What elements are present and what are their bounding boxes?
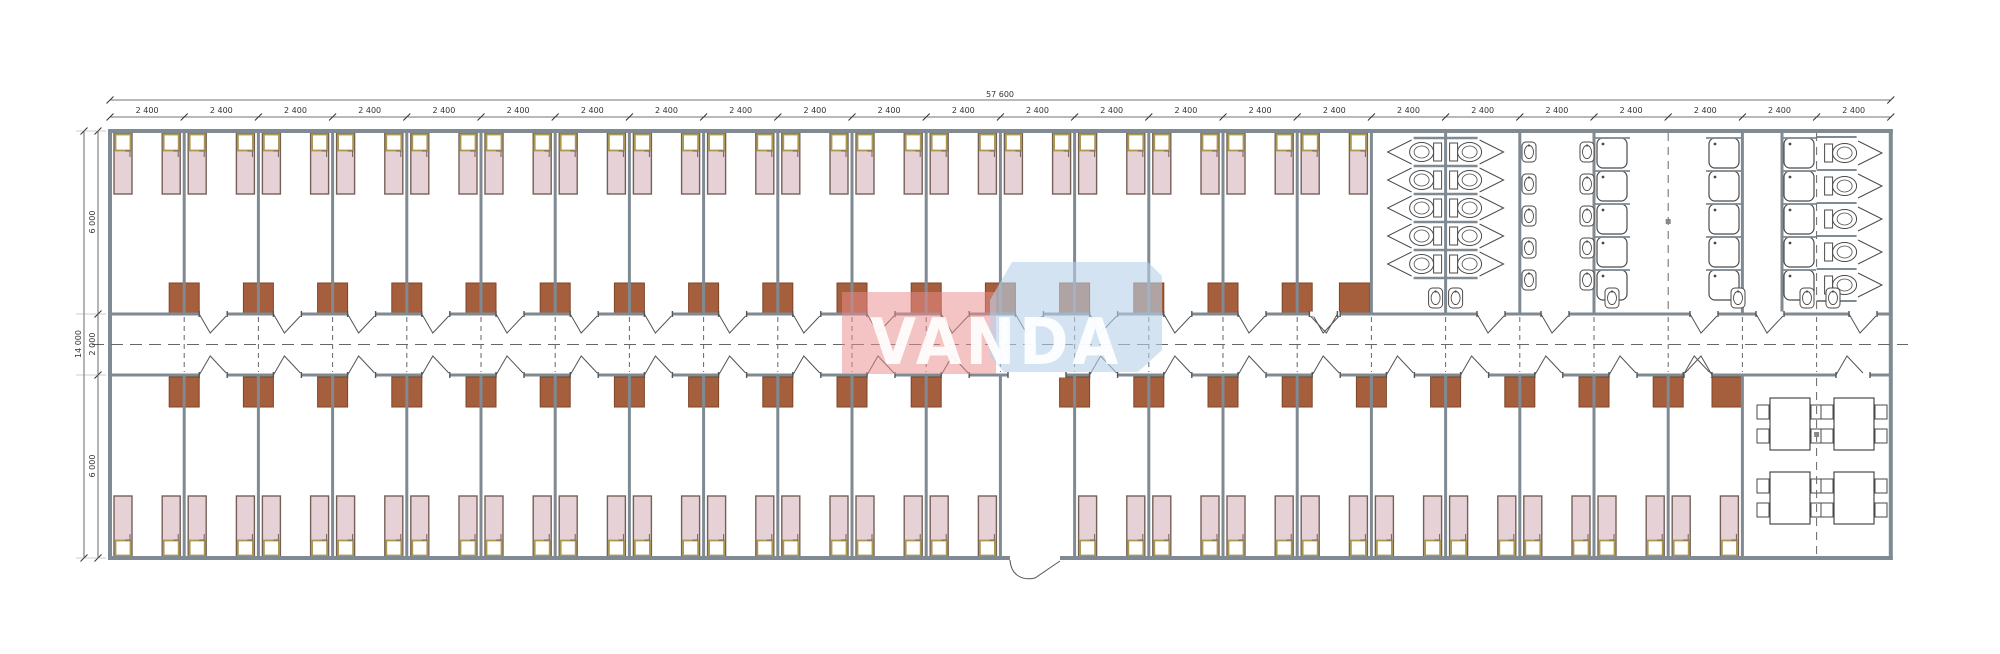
bed-pillow (1054, 135, 1069, 151)
tray-rim (1709, 138, 1739, 168)
door-swing (273, 356, 300, 375)
door-opening (1386, 373, 1414, 378)
bed-icon (1349, 133, 1367, 194)
bed-pillow (312, 541, 327, 556)
shower-tray-icon (1709, 204, 1739, 234)
bed-pillow (609, 541, 624, 556)
tray-rim (1597, 171, 1627, 201)
tray-rim (1784, 138, 1814, 168)
toilet-bowl (1458, 255, 1482, 274)
entrance-door-swing (1010, 560, 1060, 579)
dimension-bay-label: 2 400 (803, 106, 826, 115)
bed-pillow (980, 541, 995, 556)
bed-pillow (1648, 541, 1663, 556)
basin-tap (1586, 144, 1588, 146)
bed-pillow (1006, 135, 1021, 151)
fixtures-layer (1388, 137, 1887, 524)
door-swing (1477, 314, 1504, 333)
door-opening (1238, 312, 1266, 317)
bed-pillow (858, 135, 873, 151)
toilet-icon (1410, 255, 1442, 274)
stall-door (1858, 141, 1882, 165)
bed-icon (607, 496, 625, 557)
door-opening (1609, 373, 1637, 378)
table-with-chairs (1821, 472, 1887, 524)
bed-icon (311, 133, 329, 194)
bed-icon (1301, 496, 1319, 557)
stall-door (1388, 252, 1412, 276)
bed-pillow (709, 135, 724, 151)
toilet-bowl (1410, 171, 1434, 190)
bed-icon (337, 496, 355, 557)
door-opening (1541, 312, 1569, 317)
axis-symbol (1666, 219, 1671, 224)
tray-rim (1597, 138, 1627, 168)
dimension-bottom-depth-label: 6 000 (88, 455, 97, 478)
door-swing (570, 314, 597, 333)
wash-basin-icon (1580, 238, 1594, 258)
dimension-corridor-depth-label: 2 000 (88, 333, 97, 356)
chair (1821, 479, 1833, 493)
door-swing (1386, 356, 1413, 375)
toilet-bowl (1833, 144, 1857, 163)
door-opening (644, 373, 672, 378)
bed-pillow (1277, 135, 1292, 151)
tray-drain (1789, 143, 1792, 146)
bed-icon (633, 496, 651, 557)
toilet-tank (1450, 171, 1458, 189)
wash-basin-icon (1580, 206, 1594, 226)
bed-icon (830, 133, 848, 194)
toilet-icon (1825, 243, 1857, 262)
floor-plan-canvas: 57 600 14 000 6 000 2 000 6 000 2 4002 4… (0, 0, 2000, 654)
shower-tray-icon (1597, 204, 1627, 234)
bed-pillow (683, 135, 698, 151)
bed-pillow (1574, 541, 1589, 556)
bed-icon (1498, 496, 1516, 557)
bed-icon (1349, 496, 1367, 557)
door-swing (570, 356, 597, 375)
bed-icon (385, 133, 403, 194)
bed-pillow (386, 541, 401, 556)
bed-pillow (980, 135, 995, 151)
tray-drain (1789, 209, 1792, 212)
bed-icon (114, 133, 132, 194)
door-opening (570, 373, 598, 378)
chair (1821, 503, 1833, 517)
stall-door (1480, 252, 1504, 276)
room-door (1712, 377, 1742, 407)
bed-pillow (1674, 541, 1689, 556)
bed-icon (782, 133, 800, 194)
bed-icon (188, 133, 206, 194)
shower-tray-icon (1784, 204, 1814, 234)
tray-drain (1602, 209, 1605, 212)
door-opening (1756, 312, 1784, 317)
bed-icon (236, 496, 254, 557)
door-opening (1690, 312, 1718, 317)
stall-door (1858, 240, 1882, 264)
basin-tap (1528, 208, 1530, 210)
dimension-bay-label: 2 400 (507, 106, 530, 115)
bed-icon (1572, 496, 1590, 557)
door-swing (1541, 314, 1568, 333)
bed-icon (930, 496, 948, 557)
dimension-bay-label: 2 400 (1174, 106, 1197, 115)
bed-icon (633, 133, 651, 194)
bed-pillow (1600, 541, 1615, 556)
bed-icon (1646, 496, 1664, 557)
door-opening (199, 373, 227, 378)
bed-pillow (561, 135, 576, 151)
tray-rim (1784, 237, 1814, 267)
basin-tap (1528, 240, 1530, 242)
tray-drain (1789, 176, 1792, 179)
stall-door (1858, 273, 1882, 297)
basin-tap (1586, 176, 1588, 178)
toilet-tank (1450, 143, 1458, 161)
toilet-bowl (1833, 210, 1857, 229)
door-opening (496, 373, 524, 378)
shower-tray-icon (1784, 171, 1814, 201)
door-swing (1310, 314, 1337, 333)
dimension-bay-label: 2 400 (432, 106, 455, 115)
bed-pillow (1722, 541, 1737, 556)
bed-icon (559, 133, 577, 194)
tray-drain (1602, 176, 1605, 179)
tray-drain (1602, 143, 1605, 146)
toilet-bowl (1410, 255, 1434, 274)
toilet-tank (1825, 144, 1833, 162)
tray-drain (1602, 275, 1605, 278)
bed-icon (830, 496, 848, 557)
bed-pillow (1525, 541, 1540, 556)
bed-icon (411, 496, 429, 557)
bed-icon (1153, 133, 1171, 194)
toilet-icon (1410, 227, 1442, 246)
chair (1757, 479, 1769, 493)
bed-pillow (1303, 135, 1318, 151)
door-swing (1535, 356, 1562, 375)
toilet-tank (1434, 227, 1442, 245)
bed-icon (904, 496, 922, 557)
bed-icon (114, 496, 132, 557)
door-opening (1836, 373, 1870, 378)
tray-drain (1789, 242, 1792, 245)
bed-pillow (1203, 541, 1218, 556)
bed-pillow (858, 541, 873, 556)
door-swing (422, 314, 449, 333)
bed-icon (1375, 496, 1393, 557)
dimension-bay-label: 2 400 (1768, 106, 1791, 115)
door-opening (1535, 373, 1563, 378)
bed-icon (162, 133, 180, 194)
dimension-total-width-label: 57 600 (986, 90, 1014, 99)
chair (1757, 429, 1769, 443)
bed-pillow (783, 135, 798, 151)
bed-icon (978, 496, 996, 557)
bed-pillow (783, 541, 798, 556)
bed-pillow (906, 135, 921, 151)
bed-pillow (1154, 135, 1169, 151)
bed-icon (756, 496, 774, 557)
door-opening (1312, 373, 1340, 378)
stall-door (1388, 196, 1412, 220)
door-opening (570, 312, 598, 317)
door-opening (422, 312, 450, 317)
door-opening (1849, 312, 1877, 317)
wash-basin-icon (1522, 238, 1536, 258)
dimension-bay-label: 2 400 (1694, 106, 1717, 115)
bed-icon (162, 496, 180, 557)
toilet-icon (1450, 143, 1482, 162)
dimension-bay-label: 2 400 (729, 106, 752, 115)
bed-pillow (312, 135, 327, 151)
stall-door (1388, 224, 1412, 248)
door-swing (1849, 314, 1876, 333)
table (1834, 472, 1874, 524)
stall-door (1480, 140, 1504, 164)
dimension-bay-label: 2 400 (655, 106, 678, 115)
bed-pillow (461, 541, 476, 556)
bed-pillow (461, 135, 476, 151)
bed-icon (1201, 133, 1219, 194)
door-swing (1836, 356, 1863, 375)
bed-pillow (1351, 541, 1366, 556)
dimension-bay-label: 2 400 (1026, 106, 1049, 115)
bed-pillow (1499, 541, 1514, 556)
bed-pillow (487, 541, 502, 556)
bed-pillow (1451, 541, 1466, 556)
wash-basin-icon (1522, 174, 1536, 194)
door-swing (1609, 356, 1636, 375)
tray-drain (1789, 275, 1792, 278)
bed-icon (756, 133, 774, 194)
bed-icon (930, 133, 948, 194)
door-opening (273, 373, 301, 378)
door-swing (1238, 356, 1265, 375)
chair (1821, 405, 1833, 419)
bed-pillow (386, 135, 401, 151)
toilet-tank (1450, 227, 1458, 245)
chair (1875, 479, 1887, 493)
door-opening (719, 312, 747, 317)
chair (1757, 503, 1769, 517)
bed-pillow (1203, 135, 1218, 151)
basin-tap (1528, 176, 1530, 178)
bed-pillow (1128, 135, 1143, 151)
dimension-bay-label: 2 400 (1842, 106, 1865, 115)
stall-door (1858, 174, 1882, 198)
axis-symbol (1814, 432, 1819, 437)
dimension-bay-label: 2 400 (1100, 106, 1123, 115)
tray-rim (1597, 204, 1627, 234)
stall-door (1480, 196, 1504, 220)
toilet-bowl (1833, 243, 1857, 262)
toilet-icon (1410, 199, 1442, 218)
bed-icon (1227, 133, 1245, 194)
bed-pillow (832, 541, 847, 556)
stall-door (1480, 168, 1504, 192)
bed-pillow (1351, 135, 1366, 151)
shower-tray-icon (1784, 138, 1814, 168)
wash-basin-icon (1522, 206, 1536, 226)
tray-drain (1714, 242, 1717, 245)
door-opening (348, 373, 376, 378)
toilet-icon (1825, 144, 1857, 163)
chair (1821, 429, 1833, 443)
tray-rim (1709, 171, 1739, 201)
basin-tap (1586, 272, 1588, 274)
toilet-icon (1450, 199, 1482, 218)
basin-tap (1586, 240, 1588, 242)
bed-icon (682, 133, 700, 194)
dimension-bay-label: 2 400 (358, 106, 381, 115)
stall-door (1480, 224, 1504, 248)
wash-basin-icon (1522, 270, 1536, 290)
dimension-bay-label: 2 400 (1471, 106, 1494, 115)
toilet-tank (1450, 199, 1458, 217)
door-opening (273, 312, 301, 317)
bed-icon (533, 133, 551, 194)
stall-door (1388, 168, 1412, 192)
bed-icon (1450, 496, 1468, 557)
door-swing (199, 314, 226, 333)
bed-pillow (116, 135, 131, 151)
bed-icon (311, 496, 329, 557)
bed-pillow (1128, 541, 1143, 556)
door-swing (719, 314, 746, 333)
bed-pillow (1377, 541, 1392, 556)
toilet-bowl (1458, 171, 1482, 190)
basin-tap (1832, 290, 1834, 292)
toilet-bowl (1833, 177, 1857, 196)
tray-rim (1709, 237, 1739, 267)
wash-basin-icon (1580, 142, 1594, 162)
tray-rim (1597, 237, 1627, 267)
bed-icon (682, 496, 700, 557)
shower-tray-icon (1784, 237, 1814, 267)
bed-icon (1079, 133, 1097, 194)
bed-icon (904, 133, 922, 194)
tray-drain (1602, 242, 1605, 245)
bed-icon (485, 133, 503, 194)
toilet-bowl (1410, 143, 1434, 162)
door-opening (348, 312, 376, 317)
stall-door (1388, 140, 1412, 164)
dimension-bay-label: 2 400 (284, 106, 307, 115)
door-swing (1164, 314, 1191, 333)
door-opening (793, 373, 821, 378)
toilet-tank (1434, 199, 1442, 217)
toilet-tank (1434, 255, 1442, 273)
dimension-bay-label: 2 400 (581, 106, 604, 115)
bed-icon (459, 133, 477, 194)
bed-pillow (635, 135, 650, 151)
wash-basin-icon (1580, 174, 1594, 194)
bed-icon (236, 133, 254, 194)
bed-pillow (1080, 541, 1095, 556)
bed-pillow (412, 541, 427, 556)
bed-icon (262, 133, 280, 194)
wash-basin-icon (1429, 288, 1443, 308)
dimension-top-depth-label: 6 000 (88, 211, 97, 234)
door-swing (1312, 314, 1339, 333)
door-swing (496, 314, 523, 333)
bed-icon (188, 496, 206, 557)
door-swing (1756, 314, 1783, 333)
door-opening (1684, 373, 1712, 378)
bed-icon (459, 496, 477, 557)
bed-icon (1524, 496, 1542, 557)
bed-icon (1424, 496, 1442, 557)
basin-tap (1806, 290, 1808, 292)
bed-pillow (264, 135, 279, 151)
bed-pillow (535, 135, 550, 151)
wash-basin-icon (1580, 270, 1594, 290)
table (1834, 398, 1874, 450)
door-swing (1690, 314, 1717, 333)
bed-icon (978, 133, 996, 194)
bed-icon (1720, 496, 1738, 557)
door-swing (644, 314, 671, 333)
bed-pillow (238, 541, 253, 556)
bed-icon (1053, 133, 1071, 194)
bed-pillow (116, 541, 131, 556)
room-door (1339, 283, 1369, 313)
watermark-text: VANDA (870, 306, 1122, 380)
bed-icon (1275, 496, 1293, 557)
bed-pillow (932, 135, 947, 151)
dimension-bay-label: 2 400 (878, 106, 901, 115)
wash-basin-icon (1449, 288, 1463, 308)
shower-tray-icon (1709, 138, 1739, 168)
bed-pillow (709, 541, 724, 556)
door-opening (199, 312, 227, 317)
bed-pillow (190, 135, 205, 151)
door-opening (1309, 312, 1337, 317)
bed-pillow (487, 135, 502, 151)
toilet-bowl (1458, 227, 1482, 246)
bed-icon (262, 496, 280, 557)
basin-tap (1528, 272, 1530, 274)
bed-pillow (412, 135, 427, 151)
bed-icon (1598, 496, 1616, 557)
bed-pillow (1303, 541, 1318, 556)
bed-pillow (190, 541, 205, 556)
wash-basin-icon (1826, 288, 1840, 308)
bed-pillow (264, 541, 279, 556)
dimension-bay-label: 2 400 (210, 106, 233, 115)
bed-pillow (338, 541, 353, 556)
door-swing (793, 356, 820, 375)
bed-icon (533, 496, 551, 557)
bed-icon (1275, 133, 1293, 194)
bed-icon (559, 496, 577, 557)
bed-pillow (1229, 135, 1244, 151)
bed-pillow (906, 541, 921, 556)
basin-tap (1611, 290, 1613, 292)
tray-rim (1784, 204, 1814, 234)
door-opening (422, 373, 450, 378)
door-swing (793, 314, 820, 333)
tray-drain (1714, 275, 1717, 278)
bed-icon (1227, 496, 1245, 557)
toilet-tank (1434, 171, 1442, 189)
door-swing (1461, 356, 1488, 375)
bed-icon (1079, 496, 1097, 557)
table-with-chairs (1821, 398, 1887, 450)
